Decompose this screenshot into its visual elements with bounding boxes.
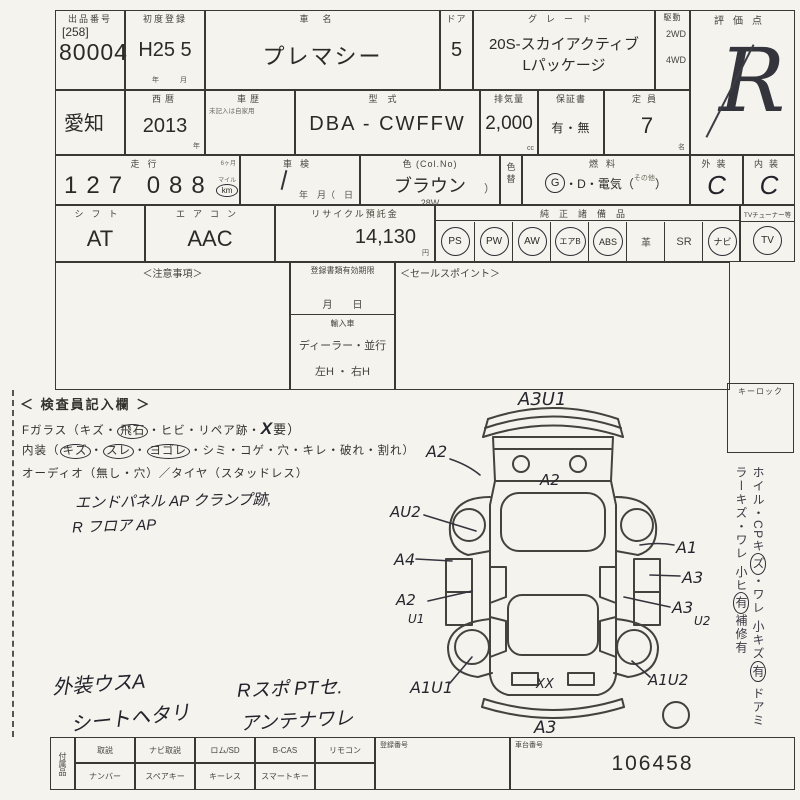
accessory-rom-sd: ロム/SD	[195, 737, 255, 763]
first-registration-header: 初度登録	[126, 11, 204, 25]
sales-point-title: ＜セールスポイント＞	[396, 263, 729, 280]
tv-tuner-cell: TVチューナー等 TV	[740, 205, 795, 262]
first-registration-year-unit: 年	[152, 75, 159, 85]
fglass-stone-chip-circled: 飛石	[117, 424, 148, 439]
shift-cell: シフト AT	[55, 205, 145, 262]
equipment-abs: ABS	[588, 222, 627, 261]
damage-code-rear-bumper: A3	[533, 718, 556, 737]
history-note: 未記入は自家用	[206, 105, 294, 115]
tv-tuner-circled: TV	[753, 226, 782, 255]
lot-header: 出品番号	[56, 11, 124, 25]
interior-wear-circled: スレ	[103, 444, 134, 459]
exterior-cell: 外装 C	[690, 155, 743, 205]
model-code-header: 型式	[296, 91, 479, 105]
color-paren: ）	[484, 180, 495, 196]
registration-number-header: 登録番号	[376, 738, 509, 750]
fglass-x-mark-handwritten: X	[261, 419, 273, 438]
inspector-note-rfloor: R フロア AP	[72, 514, 157, 538]
equipment-aw: AW	[512, 222, 551, 261]
mileage-small-note: 6ヶ月	[221, 158, 236, 167]
year-unit: 年	[193, 141, 200, 151]
chassis-number-cell: 車台番号 106458	[510, 737, 795, 790]
registration-number-cell: 登録番号	[375, 737, 510, 790]
recycle-deposit-unit: 円	[422, 248, 429, 258]
drive-2wd: 2WD	[656, 23, 689, 39]
color-header: 色 (Col.No)	[361, 156, 499, 170]
inspector-line-interior: 内装（キズ・スレ・ヨゴレ・シミ・コゲ・穴・キレ・破れ・割れ）	[22, 442, 415, 458]
mileage-value: 127 088	[64, 172, 214, 200]
damage-code-left-rear-door-u1: U1	[408, 612, 424, 626]
accessory-plate: ナンバー	[75, 763, 135, 790]
damage-code-left-rear-fender: A1U1	[409, 678, 453, 697]
door-value: 5	[441, 39, 472, 62]
history-cell: 車歴 未記入は自家用	[205, 90, 295, 155]
car-name-cell: 車名 プレマシー	[205, 10, 440, 90]
region-value: 愛知	[56, 91, 124, 136]
damage-code-right-rear-u2: U2	[694, 614, 710, 628]
model-code-cell: 型式 DBA - CWFFW	[295, 90, 480, 155]
damage-code-left-front-fender: A2	[425, 442, 447, 461]
accessory-smart-key: スマートキー	[255, 763, 315, 790]
displacement-unit: cc	[527, 145, 534, 152]
displacement-value: 2,000	[481, 113, 537, 135]
wheel-scratch-circled: ズ	[750, 553, 766, 575]
equipment-sunroof: SR	[664, 222, 703, 261]
mileage-km-label: km	[216, 184, 239, 197]
inspector-note-endpanel: エンドパネル AP クランプ跡,	[75, 488, 272, 512]
note-antenna-crack: アンテナワレ	[239, 703, 354, 736]
sales-point-box: ＜セールスポイント＞	[395, 262, 730, 390]
keylock-label: キーロック	[728, 384, 793, 397]
accessory-navi-manual: ナビ取説	[135, 737, 195, 763]
capacity-header: 定員	[605, 91, 689, 105]
keylock-box: キーロック	[727, 383, 794, 453]
grade-header: グレード	[474, 11, 654, 25]
mileage-mile-label: マイル	[218, 175, 236, 184]
note-seat-worn: シートヘタリ	[69, 696, 191, 737]
warranty-value: 有・無	[539, 119, 603, 136]
lot-cell: 出品番号 [258] 80004	[55, 10, 125, 90]
grade-line1: 20S-スカイアクティブ	[474, 33, 654, 54]
recycle-deposit-value: 14,130	[276, 226, 434, 249]
handle-position-label: 左H ・ 右H	[291, 363, 394, 379]
year-value: 2013	[126, 115, 204, 138]
equipment-navi: ナビ	[702, 222, 742, 261]
note-exterior-thin: 外装ウスA	[51, 665, 146, 700]
score-cell: 評価点 R	[690, 10, 795, 155]
damage-code-hood: A2	[539, 471, 560, 489]
first-registration-value: H25 5	[126, 39, 204, 62]
inspector-title: ＜ 検査員記入欄 ＞	[20, 394, 151, 413]
chassis-number-value: 106458	[511, 752, 794, 776]
damage-code-right-door: A1	[675, 538, 697, 557]
year-cell: 西暦 2013 年	[125, 90, 205, 155]
capacity-value: 7	[605, 113, 689, 139]
color-change-label: 色替	[505, 162, 518, 186]
lot-number: 80004	[56, 39, 124, 66]
capacity-unit: 名	[678, 142, 685, 152]
interior-header: 内装	[744, 156, 794, 170]
interior-scratch-circled: キズ	[60, 444, 91, 459]
chassis-number-header: 車台番号	[511, 738, 794, 750]
accessory-bcas: B-CAS	[255, 737, 315, 763]
damage-code-left-door: A4	[393, 550, 415, 569]
mileage-header: 走行	[56, 156, 239, 170]
import-car-label: 輸入車	[291, 318, 394, 329]
mirror-present-circled: 有	[733, 592, 749, 614]
shaken-header: 車検	[241, 156, 359, 170]
aircon-header: エアコン	[146, 206, 274, 220]
fuel-cell: 燃料 G ・D・電気（ その他 ）	[522, 155, 690, 205]
warranty-cell: 保証書 有・無	[538, 90, 604, 155]
damage-code-right-rear: A3	[671, 598, 693, 617]
equipment-header: 純正諸備品	[436, 206, 739, 221]
shaken-cell: 車検 年 月（ 日	[240, 155, 360, 205]
color-cell: 色 (Col.No) ブラウン 28W ）	[360, 155, 500, 205]
accessory-spare-key: スペアキー	[135, 763, 195, 790]
accessory-keyless: キーレス	[195, 763, 255, 790]
dealer-parallel-label: ディーラー・並行	[291, 337, 394, 353]
damage-code-left-upper: AU2	[389, 503, 421, 521]
fuel-other-label: その他	[634, 173, 655, 183]
exterior-grade-handwritten: C	[691, 170, 742, 201]
interior-grade-handwritten: C	[744, 170, 794, 201]
accessory-remote: リモコン	[315, 737, 375, 763]
damage-code-right-rear-fender: A1U2	[647, 671, 688, 689]
color-change-cell: 色替	[500, 155, 522, 205]
grade-cell: グレード 20S-スカイアクティブ Lパッケージ	[473, 10, 655, 90]
side-condition-notes: ホイル・CPキズ・ワレ 小キズ有 ドアミラーキズ・ワレ 小ヒ有補修有	[733, 466, 767, 738]
fuel-options: ・D・電気（	[565, 175, 634, 192]
equipment-airbag: エアB	[550, 222, 589, 261]
damage-code-rear-panel-xx: XX	[535, 677, 555, 692]
car-name-value: プレマシー	[206, 39, 439, 71]
drive-4wd: 4WD	[656, 39, 689, 65]
wheel-cap-note: ホイル・CPキズ・ワレ 小キズ有	[751, 466, 765, 687]
color-value: ブラウン	[361, 172, 499, 198]
interior-cell: 内装 C	[743, 155, 795, 205]
warranty-header: 保証書	[539, 91, 603, 105]
score-header: 評価点	[691, 11, 794, 27]
accessories-side-label: 付属品	[50, 737, 75, 790]
note-rear-spoiler: Rスポ PTセ.	[237, 672, 343, 703]
fuel-gasoline-circled: G	[545, 173, 565, 193]
aircon-cell: エアコン AAC	[145, 205, 275, 262]
inspector-line-audio-tire: オーディオ（無し・穴）／タイヤ（スタッドレス）	[22, 465, 308, 481]
tv-tuner-header: TVチューナー等	[741, 206, 794, 222]
displacement-cell: 排気量 2,000 cc	[480, 90, 538, 155]
history-header: 車歴	[206, 91, 294, 105]
registration-docs-box: 登録書類有効期限 月 日 輸入車 ディーラー・並行 左H ・ 右H	[290, 262, 395, 390]
capacity-cell: 定員 7 名	[604, 90, 690, 155]
car-name-header: 車名	[206, 11, 439, 25]
equipment-pw: PW	[474, 222, 513, 261]
caution-notes-box: ＜注意事項＞	[55, 262, 290, 390]
shift-header: シフト	[56, 206, 144, 220]
accessory-manual: 取説	[75, 737, 135, 763]
door-cell: ドア 5	[440, 10, 473, 90]
model-code-value: DBA - CWFFW	[296, 113, 479, 136]
wheel-present-circled: 有	[750, 661, 766, 683]
shift-value: AT	[56, 226, 144, 252]
year-header: 西暦	[126, 91, 204, 105]
first-registration-month-unit: 月	[180, 75, 187, 85]
accessory-empty	[315, 763, 375, 790]
shaken-handwritten-tick	[281, 170, 288, 190]
recycle-deposit-cell: リサイクル預託金 14,130 円	[275, 205, 435, 262]
interior-dirt-circled: ヨゴレ	[147, 444, 191, 459]
recycle-deposit-header: リサイクル預託金	[276, 206, 434, 220]
aircon-value: AAC	[146, 226, 274, 252]
equipment-leather: 革	[626, 222, 665, 261]
fuel-close-paren: ）	[655, 175, 667, 192]
region-cell: 愛知	[55, 90, 125, 155]
grade-line2: Lパッケージ	[474, 54, 654, 75]
exterior-header: 外装	[691, 156, 742, 170]
caution-notes-title: ＜注意事項＞	[56, 263, 289, 280]
auction-sheet: 出品番号 [258] 80004 初度登録 H25 5 年 月 車名 プレマシー…	[0, 0, 800, 800]
door-header: ドア	[441, 11, 472, 25]
inspector-line-fglass: Fガラス（キズ・飛石・ヒビ・リペア跡・X要）	[22, 419, 301, 439]
damage-code-left-rear-door: A2	[395, 591, 416, 609]
fuel-header: 燃料	[523, 156, 689, 170]
first-registration-cell: 初度登録 H25 5 年 月	[125, 10, 205, 90]
hand-circle-mark	[663, 702, 689, 728]
drive-header: 駆動	[656, 11, 689, 23]
damage-code-right-side: A3	[681, 568, 703, 587]
equipment-group: 純正諸備品 PS PW AW エアB ABS 革 SR ナビ	[435, 205, 740, 262]
displacement-header: 排気量	[481, 91, 537, 105]
equipment-ps: PS	[436, 222, 474, 261]
damage-codes: A3U1 A2 A2 AU2 A4 A2 U1 A1U1 A1 A3 A3 U2…	[389, 389, 710, 737]
registration-docs-date: 月 日	[291, 296, 394, 315]
section-divider-dashed	[12, 390, 14, 737]
drive-cell: 駆動 2WD 4WD	[655, 10, 690, 90]
mileage-cell: 走行 6ヶ月 127 088 マイル km	[55, 155, 240, 205]
registration-docs-header: 登録書類有効期限	[291, 263, 394, 276]
damage-code-front-bumper: A3U1	[517, 389, 566, 410]
shaken-labels: 年 月（ 日	[299, 188, 353, 201]
lot-bracket: [258]	[56, 25, 124, 39]
car-damage-diagram: A3U1 A2 A2 AU2 A4 A2 U1 A1U1 A1 A3 A3 U2…	[388, 385, 733, 737]
